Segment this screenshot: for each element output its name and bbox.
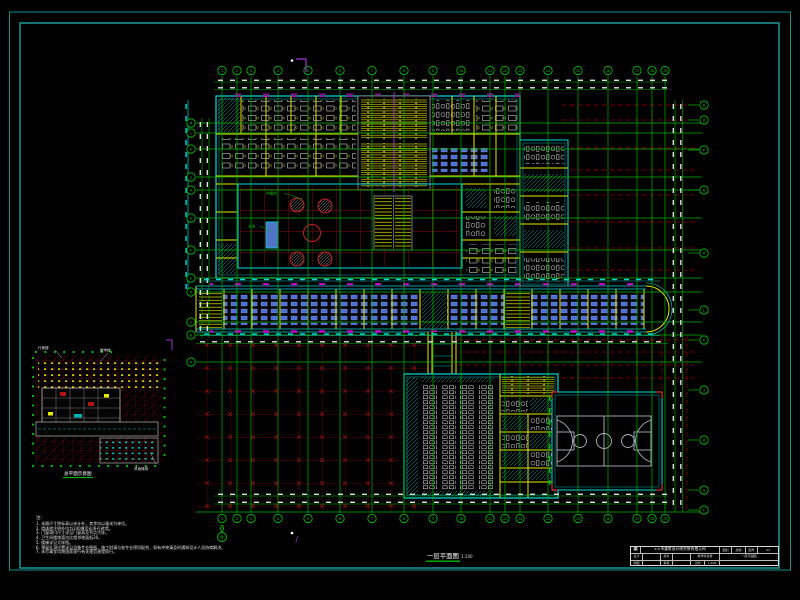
office-desks [476,100,518,131]
pool [266,222,278,248]
svg-text:C: C [190,320,192,324]
classroom-desks-blue [432,148,488,172]
svg-text:16: 16 [606,517,610,521]
section-marker-bottom: J [294,535,298,543]
connector-corridor [428,332,456,374]
svg-text:13: 13 [518,69,522,73]
svg-text:9: 9 [432,69,434,73]
company-name: ××市建筑设计研究院有限公司 [641,547,720,554]
svg-text:5: 5 [307,517,309,521]
svg-text:7: 7 [371,517,373,521]
planter-circle [290,198,304,212]
planter-circle [290,252,304,266]
stair-west [199,292,222,328]
scale-value: 1:100 [705,561,720,566]
svg-text:P: P [703,148,705,152]
svg-text:H: H [703,438,705,442]
svg-text:H: H [190,188,192,192]
svg-text:18: 18 [650,517,654,521]
section-marker-left [166,340,172,350]
audit-label: 审核 [661,561,673,566]
svg-text:9: 9 [432,517,434,521]
svg-text:2: 2 [236,69,238,73]
svg-text:B: B [190,333,192,337]
seat-rows [460,384,475,490]
planter-circle [318,252,332,266]
scale-label: 比例 [691,561,705,566]
stair-east [506,292,530,328]
key-plan-block-ne [112,358,160,388]
svg-text:L: L [190,131,192,135]
key-plan-label-3: 风雨操场 [134,466,149,471]
courtyard: 种植池 水池 [238,184,462,268]
key-plan-block-nw [38,358,112,390]
svg-text:6: 6 [339,69,341,73]
class-value: 建施 [732,547,746,554]
svg-text:14: 14 [546,69,550,73]
seat-rows [441,384,456,490]
svg-text:L: L [703,308,705,312]
svg-text:18: 18 [650,69,654,73]
svg-text:F: F [190,248,192,252]
svg-text:14: 14 [546,517,550,521]
main-plan-title: 一层平面图 [427,552,459,560]
planter-label: 种植池 [266,191,277,196]
svg-text:5: 5 [307,69,309,73]
caption-underline [63,477,93,478]
class-label: 图别 [720,547,732,554]
svg-text:19: 19 [663,517,667,521]
svg-text:F: F [703,508,705,512]
svg-text:11: 11 [488,517,492,521]
svg-text:13: 13 [518,517,522,521]
svg-text:17: 17 [635,69,639,73]
svg-text:15: 15 [576,69,580,73]
main-caption: 一层平面图 1:100 [426,552,473,562]
key-plan-caption: 总平面示意图 [64,470,92,477]
svg-text:3: 3 [250,69,252,73]
svg-text:G: G [190,216,192,220]
svg-text:N: N [703,188,705,192]
key-plan-label-1: 行政楼 [38,345,49,350]
key-plan-label-2: 教学楼 [100,348,111,353]
company-logo: ▦ [631,547,641,554]
svg-text:12: 12 [503,69,507,73]
stage-area [502,376,554,394]
key-plan: 行政楼 教学楼 风雨操场 总平面示意图 [32,345,166,478]
entry-hall [422,292,446,328]
title-block: ▦ ××市建筑设计研究院有限公司 图别 建施 图号 03 设计 校对 教学综合楼… [630,546,779,566]
classroom-wing [196,283,672,335]
planter-circle [318,199,332,213]
svg-text:15: 15 [576,517,580,521]
toilet-fixtures [432,100,470,131]
pool-label: 水池 [248,224,256,229]
svg-text:4: 4 [277,517,279,521]
svg-text:1: 1 [221,69,223,73]
general-notes: 注: 1. 本图尺寸除标高以米计外，其余均以毫米为单位。2. 墙体除注明外均为2… [36,516,251,555]
draw-label: 制图 [631,561,643,566]
svg-text:10: 10 [459,517,463,521]
svg-text:4: 4 [277,69,279,73]
svg-text:10: 10 [459,69,463,73]
seat-rows [422,384,437,490]
section-dot [291,532,294,535]
svg-text:7: 7 [371,69,373,73]
svg-text:12: 12 [503,517,507,521]
svg-text:11: 11 [488,69,492,73]
svg-text:G: G [703,488,705,492]
section-dot [291,59,294,62]
cad-sheet-svg: 种植池 水池 [0,0,800,600]
svg-text:17: 17 [635,517,639,521]
svg-text:J: J [190,175,192,179]
main-plan-scale: 1:100 [461,554,473,559]
svg-text:16: 16 [606,69,610,73]
svg-text:D: D [190,290,192,294]
svg-text:6: 6 [339,517,341,521]
svg-text:E: E [190,276,192,280]
no-value: 03 [758,547,778,554]
stair-left [218,244,236,274]
svg-text:Q: Q [703,118,705,122]
no-label: 图号 [746,547,758,554]
key-plan-wing [36,422,158,436]
auditorium [404,374,558,498]
svg-text:8: 8 [403,517,405,521]
paving-grid [196,336,430,512]
right-wing [520,140,568,287]
key-plan-main-building [42,388,120,426]
round-end [646,286,669,332]
svg-text:19: 19 [663,69,667,73]
caption-underline [426,561,460,562]
stair-center [374,196,412,250]
seat-rows [479,384,494,490]
drawing-sheet: 种植池 水池 [0,0,800,600]
lab-desks [242,100,356,131]
basketball-court [552,392,662,490]
notes-lines: 1. 本图尺寸除标高以米计外，其余均以毫米为单位。2. 墙体除注明外均为240厚… [36,522,251,555]
note-line: 7. 未尽事宜均按国家现行有关规范规程执行。 [36,550,251,555]
svg-text:8: 8 [403,69,405,73]
svg-text:J: J [703,388,705,392]
classroom-desks-white [220,138,356,172]
